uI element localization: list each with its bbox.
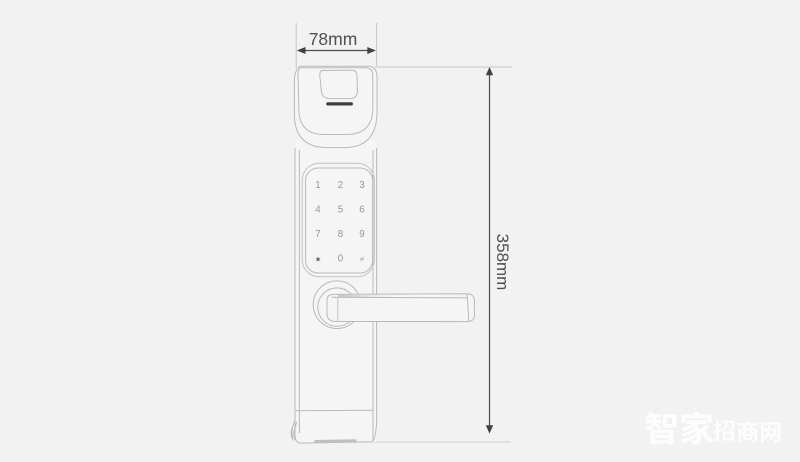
svg-text:8: 8	[338, 229, 343, 240]
svg-text:78mm: 78mm	[309, 29, 358, 49]
svg-text:0: 0	[338, 254, 344, 265]
svg-text:7: 7	[315, 229, 320, 240]
svg-text:4: 4	[315, 205, 321, 216]
svg-text:2: 2	[338, 180, 343, 191]
svg-text:6: 6	[359, 205, 364, 216]
svg-text:5: 5	[338, 205, 343, 216]
svg-text:9: 9	[359, 229, 364, 240]
svg-text:1: 1	[315, 180, 320, 191]
svg-text:358mm: 358mm	[493, 234, 512, 291]
svg-text:3: 3	[359, 180, 364, 191]
svg-text:★: ★	[315, 256, 321, 264]
